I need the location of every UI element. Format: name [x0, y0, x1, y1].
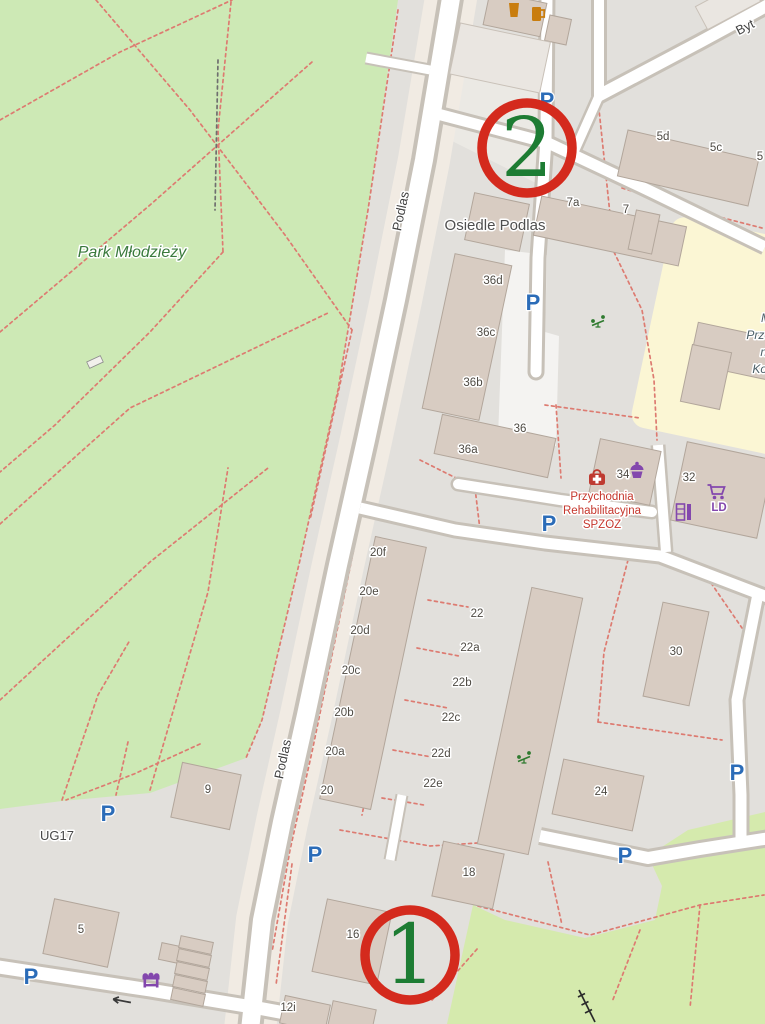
- map-canvas: PodlasPodlasBytPark MłodzieżyOsiedle Pod…: [0, 0, 765, 1024]
- building-label-20e: 20e: [359, 586, 378, 598]
- building-label-22d: 22d: [431, 748, 450, 760]
- building-label-5: 5: [757, 151, 763, 163]
- place-label: Osiedle Podlas: [445, 217, 546, 234]
- building-label-16: 16: [347, 929, 360, 941]
- clinic-label: SPZOZ: [583, 519, 621, 531]
- building-label-36c: 36c: [477, 327, 496, 339]
- parking-icon: P: [308, 842, 323, 867]
- building-label-5: 5: [78, 924, 84, 936]
- building-label-5d: 5d: [657, 131, 670, 143]
- building-label-22c: 22c: [442, 712, 461, 724]
- parking-icon: P: [618, 843, 633, 868]
- map-container: PodlasPodlasBytPark MłodzieżyOsiedle Pod…: [0, 0, 765, 1024]
- parking-icon: P: [24, 964, 39, 989]
- building-label-36b: 36b: [463, 377, 482, 389]
- place-label: Park Młodzieży: [78, 244, 187, 261]
- parking-icon: P: [730, 760, 745, 785]
- building-label-20c: 20c: [342, 665, 361, 677]
- clinic-label: Przychodnia: [570, 491, 634, 503]
- building-label-24: 24: [595, 786, 608, 798]
- building-label-22b: 22b: [452, 677, 471, 689]
- school-label: M: [761, 311, 765, 325]
- annotation-number-1: 1: [384, 908, 436, 1003]
- clinic-label: Rehabilitacyjna: [563, 505, 642, 517]
- building-label-36d: 36d: [483, 275, 502, 287]
- cup-icon: [509, 3, 519, 17]
- building-label-20b: 20b: [334, 707, 353, 719]
- building: [171, 762, 241, 829]
- building-label-20f: 20f: [370, 547, 387, 559]
- building-label-34: 34: [617, 469, 630, 481]
- building-label-22e: 22e: [423, 778, 442, 790]
- parking-icon: P: [101, 801, 116, 826]
- building-label-18: 18: [463, 867, 476, 879]
- building-label-22a: 22a: [460, 642, 480, 654]
- school-label: Kor: [752, 362, 765, 376]
- building-label-36a: 36a: [458, 444, 478, 456]
- building-label-32: 32: [683, 472, 696, 484]
- place-label: UG17: [40, 828, 74, 843]
- building-label-30: 30: [670, 646, 683, 658]
- parking-icon: P: [526, 290, 541, 315]
- shop-label-ld: LD: [711, 502, 726, 514]
- building-label-7a: 7a: [567, 197, 580, 209]
- school-label: nr: [760, 345, 765, 359]
- building-label-22: 22: [471, 608, 484, 620]
- building-label-20a: 20a: [325, 746, 345, 758]
- building-label-7: 7: [623, 204, 629, 216]
- building: [545, 15, 572, 45]
- parking-icon: P: [542, 511, 557, 536]
- annotation-number-2: 2: [501, 101, 553, 196]
- building-label-20: 20: [321, 785, 334, 797]
- building-label-12i: 12i: [280, 1002, 295, 1014]
- building-label-20d: 20d: [350, 625, 369, 637]
- building-label-5c: 5c: [710, 142, 722, 154]
- building-label-36: 36: [514, 423, 527, 435]
- building-label-9: 9: [205, 784, 211, 796]
- school-label: Prze: [746, 328, 765, 342]
